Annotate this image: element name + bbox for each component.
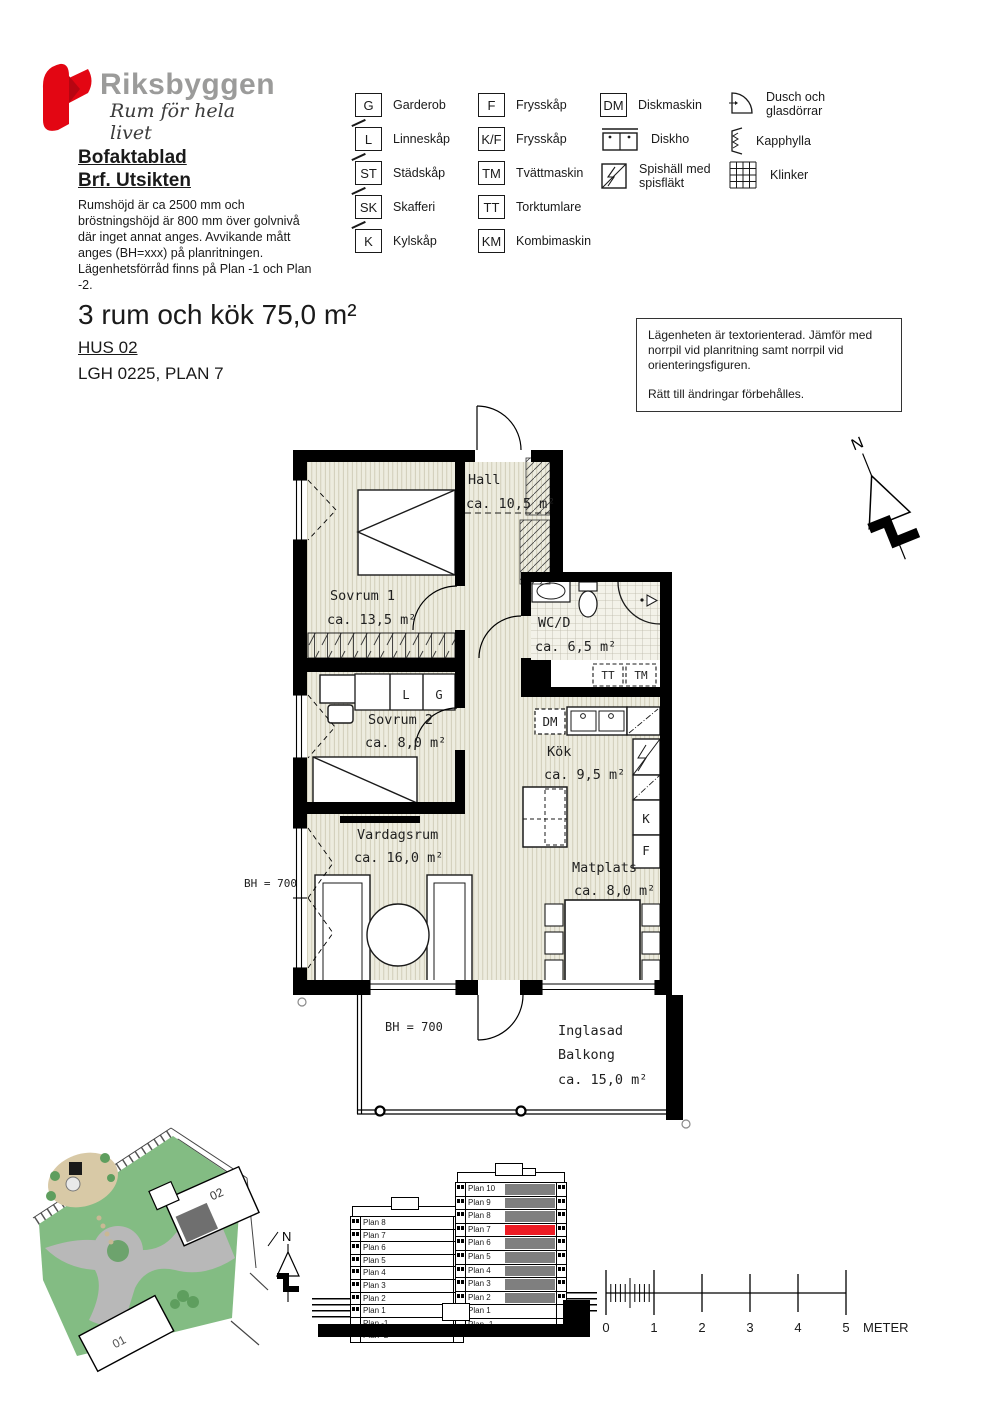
floor-row: Plan 4 [351,1266,463,1279]
room-label-kok: Kök [547,744,571,760]
floor-fill [400,1243,452,1253]
legend-item: K/F Frysskåp [478,122,591,156]
terrain-ground-right [563,1300,590,1330]
legend-item: ST Städskåp [355,156,450,190]
floor-fill [505,1252,555,1263]
room-label-balkong-2: Balkong [558,1047,615,1063]
facade-windows-icon [351,1255,361,1267]
legend-label: Diskmaskin [638,98,702,112]
facade-windows-icon [351,1293,361,1305]
room-label-matplats: Matplats [572,860,637,876]
facade-windows-icon [556,1278,566,1291]
elevation-right-building: Plan 10 Plan 9 Plan 8 Plan 7 Plan 6 Plan… [455,1160,567,1333]
terrain-hatch-left [312,1298,350,1322]
diskmaskin-icon: DM [600,93,627,117]
right-building-floors: Plan 10 Plan 9 Plan 8 Plan 7 Plan 6 Plan… [455,1182,567,1333]
apartment-hus: HUS 02 [78,338,138,358]
skafferi-icon: SK [355,195,382,219]
facade-windows-icon [351,1242,361,1254]
legend-item: G Garderob [355,88,450,122]
facade-windows-icon [351,1267,361,1279]
facade-windows-icon [351,1305,361,1317]
scale-bar: 0 1 2 3 4 5 METER [598,1260,928,1345]
legend-label: Tvättmaskin [516,166,583,180]
facade-windows-icon [556,1210,566,1223]
facade-windows-icon [456,1210,466,1223]
site-north-label: N [282,1229,291,1244]
floor-label: Plan 10 [466,1183,504,1196]
facade-windows-icon [351,1230,361,1242]
closet-label-l: L [402,688,409,702]
room-area-vardagsrum: ca. 16,0 m² [354,850,443,866]
floor-fill [400,1231,452,1241]
scale-unit: METER [863,1320,909,1335]
description: Rumshöjd är ca 2500 mm och bröstningshöj… [78,197,328,293]
legend-label: Frysskåp [516,132,567,146]
description-line: Lägenhetsförråd finns på Plan -1 och Pla… [78,261,328,293]
floor-row: Plan 1 [456,1304,566,1318]
diskho-icon [600,125,640,153]
floor-label: Plan 5 [466,1251,504,1264]
facade-windows-icon [456,1251,466,1264]
brand-name: Riksbyggen [100,68,280,102]
bh-annotation-balcony: BH = 700 [385,1020,443,1034]
floor-row: Plan 8 [351,1216,463,1229]
facade-windows-icon [456,1224,466,1237]
legend-label: Skafferi [393,200,435,214]
floor-fill [505,1198,555,1209]
facade-windows-icon [556,1251,566,1264]
facade-windows-icon [456,1183,466,1196]
laundry-label-tm: TM [634,669,648,682]
room-label-balkong-1: Inglasad [558,1023,623,1039]
legend-item: Diskho [600,122,725,156]
floor-fill [400,1294,452,1304]
legend-item: F Frysskåp [478,88,591,122]
legend-item: L Linneskåp [355,122,450,156]
floor-row: Plan 6 [456,1236,566,1250]
floor-label: Plan 7 [361,1230,399,1242]
description-line: Rumshöjd är ca 2500 mm och [78,197,328,213]
floor-row: Plan 5 [351,1254,463,1267]
floor-fill [505,1238,555,1249]
legend-item: SK Skafferi [355,190,450,224]
floor-label: Plan 4 [466,1265,504,1278]
floor-label: Plan 2 [361,1293,399,1305]
facade-windows-icon [456,1197,466,1210]
stadskap-icon: ST [355,161,382,185]
legend-label: Klinker [770,168,808,182]
site-plan: 01 02 [25,1118,275,1376]
linneskap-icon: L [355,127,382,151]
scale-tick-4: 4 [794,1320,801,1335]
brand-tagline: Rum för hela livet [110,100,280,144]
floor-fill [400,1256,452,1266]
legend-label: Torktumlare [516,200,581,214]
facade-windows-icon [556,1265,566,1278]
floor-plan: Hall ca. 10,5 m² Sovrum 1 ca. 13,5 m² WC… [230,398,700,1132]
floor-label: Plan 1 [466,1305,504,1318]
legend-item: KM Kombimaskin [478,224,591,258]
room-area-wcd: ca. 6,5 m² [535,639,616,655]
kitchen-label-f: F [642,843,650,858]
kyl-frys-icon: K/F [478,127,505,151]
floor-label: Plan 1 [361,1305,399,1317]
site-north-arrow-icon: N [266,1228,310,1308]
notice-paragraph-1: Lägenheten är textorienterad. Jämför med… [648,328,890,373]
torktumlare-icon: TT [478,195,505,219]
legend-item: TM Tvättmaskin [478,156,591,190]
roof-penthouse-2 [522,1168,536,1176]
legend-label: Kapphylla [756,134,811,148]
facade-windows-icon [556,1237,566,1250]
roof-penthouse [495,1163,523,1176]
balcony-glazing [298,995,690,1128]
left-building-roof [350,1194,464,1216]
legend-label: Diskho [651,132,689,146]
floor-fill [400,1281,452,1291]
room-area-sovrum1: ca. 13,5 m² [327,612,416,628]
facade-windows-icon [556,1183,566,1196]
legend-item: Spishäll med spisfläkt [600,156,725,196]
north-arrow-icon: N [826,424,936,574]
scale-tick-0: 0 [602,1320,609,1335]
tvattmaskin-icon: TM [478,161,505,185]
room-area-matplats: ca. 8,0 m² [574,883,655,899]
ribbon-icon [43,64,92,131]
floor-label: Plan 4 [361,1267,399,1279]
kombimaskin-icon: KM [478,229,505,253]
legend-label: Städskåp [393,166,445,180]
room-area-sovrum2: ca. 8,0 m² [365,735,446,751]
room-label-sovrum1: Sovrum 1 [330,588,395,604]
roof-penthouse [391,1197,419,1210]
legend-column-3: DM Diskmaskin Diskho Spishäll med spisfl… [600,88,725,196]
legend-item: TT Torktumlare [478,190,591,224]
floor-label: Plan 5 [361,1255,399,1267]
facade-windows-icon [556,1197,566,1210]
facade-windows-icon [456,1265,466,1278]
room-label-wcd: WC/D [538,615,571,631]
kylskap-icon: K [355,229,382,253]
legend-item: Klinker [727,158,852,192]
floor-fill [505,1266,555,1277]
floor-fill [505,1211,555,1222]
floor-row: Plan 3 [456,1277,566,1291]
legend-label: Frysskåp [516,98,567,112]
garderob-icon: G [355,93,382,117]
bofaktablad-sheet: Riksbyggen Rum för hela livet Bofaktabla… [0,0,992,1403]
floor-label: Plan 3 [466,1278,504,1291]
floor-fill [400,1268,452,1278]
legend-label: Kylskåp [393,234,437,248]
scale-tick-1: 1 [650,1320,657,1335]
legend-item: K Kylskåp [355,224,450,258]
room-area-kok: ca. 9,5 m² [544,767,625,783]
floor-row: Plan 3 [351,1279,463,1292]
floor-label: Plan 2 [466,1292,504,1305]
facade-windows-icon [556,1224,566,1237]
room-area-balkong: ca. 15,0 m² [558,1072,647,1088]
link-building [442,1303,470,1321]
floor-fill [505,1225,555,1236]
floor-label: Plan 6 [361,1242,399,1254]
floor-label: Plan 8 [361,1217,399,1229]
floor-label: Plan 9 [466,1197,504,1210]
room-label-vardagsrum: Vardagsrum [357,827,438,843]
legend-label: Spishäll med spisfläkt [639,162,725,190]
legend-item: Kapphylla [727,124,852,158]
floor-row: Plan 2 [456,1291,566,1305]
facade-windows-icon [351,1280,361,1292]
floor-label: Plan 8 [466,1210,504,1223]
description-line: anges (BH=xxx) på planritningen. [78,245,328,261]
floor-fill [505,1306,555,1317]
bh-annotation-left: BH = 700 [244,877,297,890]
floor-row: Plan 9 [456,1196,566,1210]
spishall-icon [600,162,628,190]
legend-column-2: F Frysskåp K/F Frysskåp TM Tvättmaskin T… [478,88,591,258]
floor-row: Plan 5 [456,1250,566,1264]
kapphylla-icon [727,125,745,157]
description-line: bröstningshöjd är 800 mm över golvnivå [78,213,328,229]
scale-tick-5: 5 [842,1320,849,1335]
legend-column-4: Dusch och glasdörrar Kapphylla Klinker [727,84,852,192]
doc-title-line1: Bofaktablad [78,146,191,169]
scale-tick-3: 3 [746,1320,753,1335]
frysskap-icon: F [478,93,505,117]
legend-label: Linneskåp [393,132,450,146]
floor-row: Plan 6 [351,1241,463,1254]
legend-label: Kombimaskin [516,234,591,248]
legend-item: DM Diskmaskin [600,88,725,122]
floor-row: Plan 8 [456,1209,566,1223]
floor-fill [505,1184,555,1195]
doc-title-line2: Brf. Utsikten [78,169,191,192]
floor-fill [505,1293,555,1304]
right-building-roof [455,1160,567,1182]
doc-title: Bofaktablad Brf. Utsikten [78,146,191,192]
floor-row: Plan 7 [351,1229,463,1242]
riksbyggen-logo: Riksbyggen Rum för hela livet [38,62,268,145]
floor-row: Plan 4 [456,1264,566,1278]
floor-fill [505,1279,555,1290]
floor-label: Plan 6 [466,1237,504,1250]
apartment-title: 3 rum och kök 75,0 m² [78,299,357,331]
kitchen-label-k: K [642,811,650,826]
floor-label: Plan 7 [466,1224,504,1237]
facade-windows-icon [456,1237,466,1250]
laundry-label-tt: TT [601,669,615,682]
scale-tick-2: 2 [698,1320,705,1335]
description-line: där inget annat anges. Avvikande mått [78,229,328,245]
floor-row-highlighted: Plan 7 [456,1223,566,1237]
floor-label: Plan 3 [361,1280,399,1292]
legend-label: Dusch och glasdörrar [766,90,852,118]
apartment-lgh: LGH 0225, PLAN 7 [78,364,224,384]
legend-label: Garderob [393,98,446,112]
facade-windows-icon [456,1278,466,1291]
dusch-icon [727,90,755,118]
closet-label-g: G [435,688,442,702]
legend-item: Dusch och glasdörrar [727,84,852,124]
floor-row: Plan 10 [456,1182,566,1196]
klinker-icon [727,159,759,191]
room-label-sovrum2: Sovrum 2 [368,712,433,728]
floor-fill [400,1218,452,1228]
room-area-hall: ca. 10,5 m² [466,496,555,512]
facade-windows-icon [351,1217,361,1229]
legend-column-1: G Garderob L Linneskåp ST Städskåp SK Sk… [355,88,450,258]
north-label: N [849,434,866,454]
room-label-hall: Hall [468,472,501,488]
kitchen-label-dm: DM [542,714,557,729]
terrain-ground [318,1324,590,1337]
